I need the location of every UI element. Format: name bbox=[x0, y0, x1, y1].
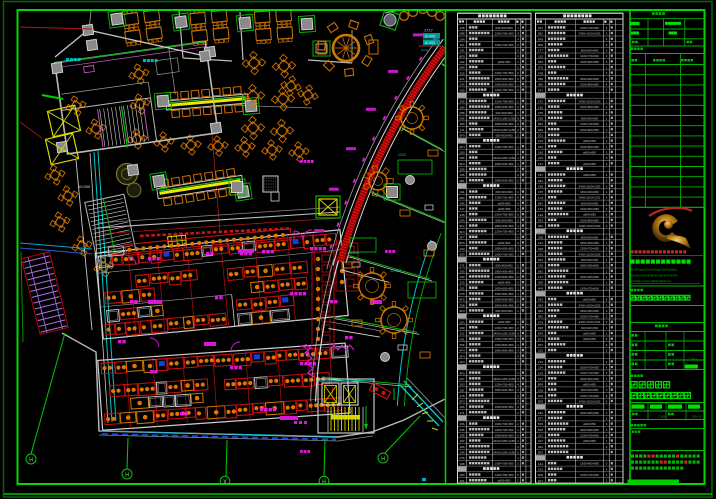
svg-text:10.000: 10.000 bbox=[425, 41, 435, 45]
svg-text:5F9: 5F9 bbox=[538, 400, 544, 404]
svg-text:1200×750×800: 1200×750×800 bbox=[495, 145, 514, 149]
svg-text:φ600×850: φ600×850 bbox=[498, 207, 511, 211]
svg-text:1500×800×850: 1500×800×850 bbox=[580, 145, 599, 149]
svg-text:1200×750×800: 1200×750×800 bbox=[495, 230, 514, 234]
svg-text:10.000: 10.000 bbox=[390, 269, 401, 273]
svg-text:133: 133 bbox=[538, 207, 543, 211]
svg-text:281: 281 bbox=[460, 388, 465, 392]
svg-text:1200×750×800: 1200×750×800 bbox=[495, 32, 514, 36]
svg-text:106: 106 bbox=[460, 445, 465, 449]
svg-text:173: 173 bbox=[538, 196, 543, 200]
svg-text:φ600×850: φ600×850 bbox=[583, 162, 596, 166]
svg-text:289: 289 bbox=[460, 168, 465, 172]
svg-text:1500×800×850: 1500×800×850 bbox=[495, 83, 514, 87]
svg-text:2400×1150×1250: 2400×1150×1250 bbox=[493, 128, 515, 132]
svg-text:2400×1150×1250: 2400×1150×1250 bbox=[493, 332, 515, 336]
svg-text:2400×1150×1250: 2400×1150×1250 bbox=[579, 100, 601, 104]
svg-text:H: H bbox=[125, 473, 129, 479]
svg-text:1800×900×800: 1800×900×800 bbox=[495, 349, 514, 353]
svg-text:182: 182 bbox=[538, 411, 543, 415]
svg-text:1717: 1717 bbox=[424, 28, 434, 33]
svg-text:1800×900×800: 1800×900×800 bbox=[580, 241, 599, 245]
svg-text:1800×900×800: 1800×900×800 bbox=[580, 309, 599, 313]
svg-text:2400×1150×1250: 2400×1150×1250 bbox=[493, 377, 515, 381]
svg-text:258: 258 bbox=[538, 235, 543, 239]
svg-text:268: 268 bbox=[460, 303, 465, 307]
svg-text:135: 135 bbox=[538, 105, 543, 109]
svg-text:600×600×800: 600×600×800 bbox=[495, 309, 513, 313]
svg-text:1800×900×800: 1800×900×800 bbox=[495, 286, 514, 290]
svg-text:2400×1150×1250: 2400×1150×1250 bbox=[579, 196, 601, 200]
svg-text:277: 277 bbox=[538, 88, 543, 92]
svg-text:1200×750×800: 1200×750×800 bbox=[495, 71, 514, 75]
svg-text:024: 024 bbox=[538, 258, 543, 262]
svg-text:1200×750×800: 1200×750×800 bbox=[580, 247, 599, 251]
svg-text:600×600×800: 600×600×800 bbox=[581, 326, 599, 330]
svg-text:041: 041 bbox=[460, 337, 465, 341]
svg-text:251: 251 bbox=[460, 286, 465, 290]
svg-text:1500×800×850: 1500×800×850 bbox=[495, 275, 514, 279]
svg-text:1000×700×950: 1000×700×950 bbox=[495, 326, 514, 330]
svg-text:8F9: 8F9 bbox=[538, 37, 544, 41]
svg-text:1800×900×800: 1800×900×800 bbox=[495, 224, 514, 228]
svg-text:2F3: 2F3 bbox=[460, 309, 466, 313]
svg-text:113: 113 bbox=[538, 434, 543, 438]
svg-text:084: 084 bbox=[460, 196, 465, 200]
svg-text:251: 251 bbox=[460, 479, 465, 483]
svg-text:8F8: 8F8 bbox=[538, 43, 544, 47]
svg-text:053: 053 bbox=[538, 60, 543, 64]
svg-text:600×600×800: 600×600×800 bbox=[581, 388, 599, 392]
svg-text:1500×800×850: 1500×800×850 bbox=[580, 105, 599, 109]
svg-text:8F9: 8F9 bbox=[460, 54, 466, 58]
svg-text:084: 084 bbox=[538, 303, 543, 307]
svg-text:φ600×850: φ600×850 bbox=[498, 60, 511, 64]
svg-text:081: 081 bbox=[460, 179, 465, 183]
svg-text:600×600×800: 600×600×800 bbox=[495, 26, 513, 30]
svg-text:019: 019 bbox=[538, 252, 543, 256]
svg-text:109: 109 bbox=[460, 60, 465, 64]
svg-text:9F2: 9F2 bbox=[460, 224, 466, 228]
svg-text:φ600×850: φ600×850 bbox=[583, 422, 596, 426]
svg-text:236: 236 bbox=[460, 422, 465, 426]
svg-text:190: 190 bbox=[538, 151, 543, 155]
svg-text:108: 108 bbox=[460, 462, 465, 466]
svg-text:084: 084 bbox=[460, 66, 465, 70]
svg-text:1000×700×950: 1000×700×950 bbox=[580, 366, 599, 370]
svg-text:221: 221 bbox=[460, 77, 465, 81]
svg-text:177: 177 bbox=[538, 49, 543, 53]
svg-text:279: 279 bbox=[538, 320, 543, 324]
svg-text:201: 201 bbox=[538, 134, 543, 138]
svg-text:3F7: 3F7 bbox=[538, 343, 544, 347]
svg-text:115: 115 bbox=[538, 54, 543, 58]
svg-text:075: 075 bbox=[538, 190, 543, 194]
svg-text:083: 083 bbox=[460, 473, 465, 477]
svg-text:137: 137 bbox=[538, 275, 543, 279]
svg-text:1800×900×800: 1800×900×800 bbox=[495, 105, 514, 109]
svg-text:135: 135 bbox=[460, 173, 465, 177]
svg-text:081: 081 bbox=[538, 269, 543, 273]
svg-text:2400×1150×1250: 2400×1150×1250 bbox=[493, 117, 515, 121]
svg-text:φ600×850: φ600×850 bbox=[498, 479, 511, 483]
svg-text:247: 247 bbox=[538, 439, 543, 443]
svg-text:1800×900×800: 1800×900×800 bbox=[495, 122, 514, 126]
svg-text:109: 109 bbox=[538, 139, 543, 143]
svg-text:1500×800×850: 1500×800×850 bbox=[580, 60, 599, 64]
svg-text:9F4: 9F4 bbox=[460, 145, 466, 149]
svg-text:180: 180 bbox=[538, 117, 543, 121]
svg-text:027: 027 bbox=[460, 377, 465, 381]
svg-text:215: 215 bbox=[538, 156, 543, 160]
svg-text:1500×800×850: 1500×800×850 bbox=[495, 292, 514, 296]
svg-text:5F9: 5F9 bbox=[460, 134, 466, 138]
svg-text:1200×750×800: 1200×750×800 bbox=[495, 100, 514, 104]
svg-text:190: 190 bbox=[538, 264, 543, 268]
svg-text:1F9: 1F9 bbox=[538, 371, 544, 375]
svg-text:3F4: 3F4 bbox=[460, 354, 466, 358]
svg-text:112: 112 bbox=[460, 332, 465, 336]
svg-text:2400×1150×1250: 2400×1150×1250 bbox=[579, 184, 601, 188]
svg-text:4F5: 4F5 bbox=[460, 371, 466, 375]
svg-text:134: 134 bbox=[460, 83, 465, 87]
svg-text:076: 076 bbox=[538, 66, 543, 70]
svg-text:286: 286 bbox=[538, 77, 543, 81]
svg-text:φ600×850: φ600×850 bbox=[583, 337, 596, 341]
svg-text:1000×700×950: 1000×700×950 bbox=[495, 462, 514, 466]
svg-text:www.bjbrx.com E-mail:bjbrx@1: www.bjbrx.com E-mail:bjbrx@163.com bbox=[631, 280, 672, 283]
svg-text:±0.000: ±0.000 bbox=[78, 184, 91, 189]
svg-text:4F4: 4F4 bbox=[460, 349, 466, 353]
svg-text:020: 020 bbox=[460, 252, 465, 256]
svg-text:600×600×800: 600×600×800 bbox=[495, 190, 513, 194]
svg-text:083: 083 bbox=[538, 122, 543, 126]
svg-text:10.000: 10.000 bbox=[348, 251, 359, 255]
svg-text:φ600×850: φ600×850 bbox=[583, 173, 596, 177]
svg-text:092: 092 bbox=[538, 315, 543, 319]
svg-text:No.38 xinghuo Road Fengtai Dis: No.38 xinghuo Road Fengtai District Beij… bbox=[631, 269, 678, 272]
svg-text:127: 127 bbox=[538, 162, 543, 166]
svg-text:1500×800×850: 1500×800×850 bbox=[580, 207, 599, 211]
svg-text:122: 122 bbox=[538, 241, 543, 245]
svg-text:149: 149 bbox=[460, 451, 465, 455]
svg-text:233: 233 bbox=[538, 145, 543, 149]
svg-text:087: 087 bbox=[538, 202, 543, 206]
svg-text:φ600×850: φ600×850 bbox=[583, 213, 596, 217]
svg-text:8F5: 8F5 bbox=[460, 241, 466, 245]
svg-text:5F7: 5F7 bbox=[538, 417, 544, 421]
svg-text:1200×750×800: 1200×750×800 bbox=[495, 383, 514, 387]
svg-text:187: 187 bbox=[538, 173, 543, 177]
svg-text:1800×900×800: 1800×900×800 bbox=[580, 377, 599, 381]
svg-text:600×600×800: 600×600×800 bbox=[581, 117, 599, 121]
svg-text:1800×900×800: 1800×900×800 bbox=[580, 264, 599, 268]
svg-text:1200×750×800: 1200×750×800 bbox=[580, 122, 599, 126]
svg-text:099: 099 bbox=[538, 309, 543, 313]
svg-text:251: 251 bbox=[538, 26, 543, 30]
svg-text:199: 199 bbox=[538, 185, 543, 189]
svg-text:199: 199 bbox=[460, 275, 465, 279]
svg-text:600×600×800: 600×600×800 bbox=[581, 235, 599, 239]
svg-text:278: 278 bbox=[460, 394, 465, 398]
svg-text:φ600×850: φ600×850 bbox=[498, 320, 511, 324]
svg-text:abcde: abcde bbox=[421, 48, 429, 52]
svg-text:φ600×850: φ600×850 bbox=[583, 298, 596, 302]
svg-text:1200×750×800: 1200×750×800 bbox=[495, 88, 514, 92]
svg-text:113: 113 bbox=[460, 281, 465, 285]
svg-text:011: 011 bbox=[460, 190, 465, 194]
svg-text:1500×800×850: 1500×800×850 bbox=[495, 343, 514, 347]
svg-text:193: 193 bbox=[460, 269, 465, 273]
svg-text:089: 089 bbox=[460, 156, 465, 160]
svg-text:155: 155 bbox=[460, 71, 465, 75]
svg-text:184: 184 bbox=[460, 105, 465, 109]
svg-text:111: 111 bbox=[460, 128, 465, 132]
svg-text:1800×900×800: 1800×900×800 bbox=[580, 428, 599, 432]
svg-text:164: 164 bbox=[538, 360, 543, 364]
svg-text:8F2: 8F2 bbox=[538, 451, 544, 455]
svg-text:2014: 2014 bbox=[691, 358, 697, 362]
svg-text:10.00: 10.00 bbox=[398, 153, 406, 157]
svg-text:056: 056 bbox=[460, 343, 465, 347]
svg-text:088: 088 bbox=[460, 32, 465, 36]
svg-text:167: 167 bbox=[538, 377, 543, 381]
svg-text:171: 171 bbox=[460, 264, 465, 268]
svg-text:115: 115 bbox=[538, 349, 543, 353]
svg-text:φ600×850: φ600×850 bbox=[583, 383, 596, 387]
svg-text:1F2: 1F2 bbox=[538, 100, 544, 104]
svg-text:5F1: 5F1 bbox=[538, 337, 544, 341]
svg-text:064: 064 bbox=[460, 219, 465, 223]
svg-text:1500×800×850: 1500×800×850 bbox=[495, 405, 514, 409]
svg-text:2400×1150×1250: 2400×1150×1250 bbox=[493, 439, 515, 443]
svg-text:180: 180 bbox=[460, 122, 465, 126]
svg-text:1800×900×800: 1800×900×800 bbox=[495, 162, 514, 166]
svg-text:2F8: 2F8 bbox=[538, 394, 544, 398]
svg-text:114: 114 bbox=[460, 43, 465, 47]
svg-text:600×600×800: 600×600×800 bbox=[495, 111, 513, 115]
svg-text:078: 078 bbox=[460, 456, 465, 460]
svg-text:φ600×850: φ600×850 bbox=[583, 139, 596, 143]
svg-text:078: 078 bbox=[460, 292, 465, 296]
svg-text:147: 147 bbox=[460, 207, 465, 211]
svg-text:600×600×800: 600×600×800 bbox=[581, 201, 599, 205]
svg-text:1800×900×800: 1800×900×800 bbox=[580, 411, 599, 415]
svg-text:081: 081 bbox=[538, 179, 543, 183]
svg-text:248: 248 bbox=[460, 26, 465, 30]
svg-text:1500×800×850: 1500×800×850 bbox=[495, 433, 514, 437]
svg-text:200: 200 bbox=[538, 281, 543, 285]
svg-text:1800×900×800: 1800×900×800 bbox=[495, 247, 514, 251]
svg-text:142: 142 bbox=[538, 462, 543, 466]
svg-text:600×600×800: 600×600×800 bbox=[581, 49, 599, 53]
svg-text:7F8: 7F8 bbox=[538, 71, 544, 75]
svg-text:1200×750×800: 1200×750×800 bbox=[580, 473, 599, 477]
svg-text:025: 025 bbox=[460, 88, 465, 92]
svg-text:245: 245 bbox=[460, 213, 465, 217]
svg-text:φ600×850: φ600×850 bbox=[498, 201, 511, 205]
svg-text:2400×1150×1250: 2400×1150×1250 bbox=[579, 32, 601, 36]
svg-text:600×600×800: 600×600×800 bbox=[581, 258, 599, 262]
svg-text:3F7: 3F7 bbox=[460, 235, 466, 239]
svg-text:9F3: 9F3 bbox=[460, 162, 466, 166]
svg-text:206: 206 bbox=[460, 405, 465, 409]
svg-text:1800×900×800: 1800×900×800 bbox=[495, 179, 514, 183]
svg-text:066: 066 bbox=[460, 117, 465, 121]
svg-text:263: 263 bbox=[460, 383, 465, 387]
svg-text:1000×700×950: 1000×700×950 bbox=[495, 422, 514, 426]
svg-text:2400×1150×1250: 2400×1150×1250 bbox=[579, 303, 601, 307]
svg-text:1000×700×950: 1000×700×950 bbox=[495, 43, 514, 47]
svg-text:1200×750×800: 1200×750×800 bbox=[580, 394, 599, 398]
svg-text:1500×800×850: 1500×800×850 bbox=[580, 462, 599, 466]
svg-text:8F9: 8F9 bbox=[538, 428, 544, 432]
svg-text:1F3: 1F3 bbox=[460, 360, 466, 364]
svg-text:131: 131 bbox=[460, 49, 465, 53]
svg-text:1500×800×850: 1500×800×850 bbox=[580, 218, 599, 222]
svg-text:166: 166 bbox=[460, 100, 465, 104]
svg-text:049: 049 bbox=[538, 128, 543, 132]
svg-text:166: 166 bbox=[460, 202, 465, 206]
svg-text:103: 103 bbox=[460, 247, 465, 251]
svg-text:160: 160 bbox=[460, 151, 465, 155]
svg-text:1200×750×800: 1200×750×800 bbox=[580, 286, 599, 290]
svg-text:6F5: 6F5 bbox=[460, 298, 466, 302]
svg-text:098: 098 bbox=[538, 326, 543, 330]
svg-text:φ600×850: φ600×850 bbox=[498, 241, 511, 245]
svg-text:035: 035 bbox=[460, 428, 465, 432]
svg-text:8F9: 8F9 bbox=[538, 473, 544, 477]
svg-text:1800×900×800: 1800×900×800 bbox=[495, 77, 514, 81]
svg-text:5F5: 5F5 bbox=[538, 422, 544, 426]
svg-text:058: 058 bbox=[460, 111, 465, 115]
svg-text:1800×900×800: 1800×900×800 bbox=[580, 275, 599, 279]
svg-text:2400×1150×1250: 2400×1150×1250 bbox=[493, 156, 515, 160]
svg-text:H: H bbox=[381, 457, 385, 463]
svg-text:1000×700×950: 1000×700×950 bbox=[495, 252, 514, 256]
svg-text:090: 090 bbox=[460, 326, 465, 330]
svg-text:1200×750×800: 1200×750×800 bbox=[580, 54, 599, 58]
svg-text:4F4: 4F4 bbox=[538, 286, 544, 290]
svg-text:2400×1150×1250: 2400×1150×1250 bbox=[579, 252, 601, 256]
svg-text:131: 131 bbox=[538, 468, 543, 472]
svg-text:171: 171 bbox=[460, 411, 465, 415]
svg-text:2014.10: 2014.10 bbox=[692, 415, 702, 419]
svg-text:093: 093 bbox=[538, 219, 543, 223]
svg-text:1:100: 1:100 bbox=[658, 415, 666, 419]
svg-text:H: H bbox=[29, 458, 33, 464]
svg-text:022: 022 bbox=[538, 445, 543, 449]
svg-text:1000×700×950: 1000×700×950 bbox=[580, 315, 599, 319]
svg-text:6F5: 6F5 bbox=[538, 332, 544, 336]
svg-text:2400×1150×1250: 2400×1150×1250 bbox=[579, 224, 601, 228]
svg-text:φ600×850: φ600×850 bbox=[498, 281, 511, 285]
svg-text:1200×750×800: 1200×750×800 bbox=[495, 213, 514, 217]
svg-text:114: 114 bbox=[538, 366, 543, 370]
svg-text:1200×750×800: 1200×750×800 bbox=[495, 473, 514, 477]
svg-text:1800×900×800: 1800×900×800 bbox=[495, 298, 514, 302]
svg-text:600×600×800: 600×600×800 bbox=[495, 134, 513, 138]
svg-text:203: 203 bbox=[460, 320, 465, 324]
svg-text:φ600×850: φ600×850 bbox=[583, 332, 596, 336]
svg-text:108: 108 bbox=[460, 434, 465, 438]
svg-text:2400×1150×1250: 2400×1150×1250 bbox=[579, 400, 601, 404]
svg-text:028: 028 bbox=[538, 247, 543, 251]
svg-text:1800×900×800: 1800×900×800 bbox=[495, 388, 514, 392]
svg-text:φ600×850: φ600×850 bbox=[583, 439, 596, 443]
svg-text:5F3: 5F3 bbox=[460, 400, 466, 404]
svg-text:600×600×800: 600×600×800 bbox=[495, 218, 513, 222]
svg-text:1800×900×800: 1800×900×800 bbox=[580, 77, 599, 81]
svg-text:194: 194 bbox=[460, 37, 465, 41]
svg-text:2F7: 2F7 bbox=[538, 479, 544, 483]
svg-text:2400×1150×1250: 2400×1150×1250 bbox=[579, 320, 601, 324]
svg-text:8F8: 8F8 bbox=[538, 383, 544, 387]
svg-text:1500×800×850: 1500×800×850 bbox=[580, 83, 599, 87]
svg-text:10.000: 10.000 bbox=[425, 35, 435, 39]
svg-text:600×600×800: 600×600×800 bbox=[495, 264, 513, 268]
svg-text:4F3: 4F3 bbox=[460, 230, 466, 234]
svg-text:1200×750×800: 1200×750×800 bbox=[495, 196, 514, 200]
svg-text:Tel:+86-10-63726788 Fax:+86-1: Tel:+86-10-63726788 Fax:+86-10-63726799 bbox=[631, 275, 679, 278]
svg-text:φ600×850: φ600×850 bbox=[583, 150, 596, 154]
svg-text:108: 108 bbox=[538, 388, 543, 392]
svg-text:2400×1150×1250: 2400×1150×1250 bbox=[493, 450, 515, 454]
svg-text:1200×750×800: 1200×750×800 bbox=[580, 433, 599, 437]
svg-text:126: 126 bbox=[538, 213, 543, 217]
svg-text:182: 182 bbox=[460, 439, 465, 443]
svg-text:1500×800×850: 1500×800×850 bbox=[580, 128, 599, 132]
svg-text:096: 096 bbox=[538, 83, 543, 87]
svg-text:1000×700×950: 1000×700×950 bbox=[580, 26, 599, 30]
svg-text:081: 081 bbox=[538, 32, 543, 36]
svg-text:1000×700×950: 1000×700×950 bbox=[495, 337, 514, 341]
svg-text:1800×900×800: 1800×900×800 bbox=[495, 303, 514, 307]
svg-text:032: 032 bbox=[538, 298, 543, 302]
svg-text:1200×750×800: 1200×750×800 bbox=[580, 371, 599, 375]
svg-text:1000×700×950: 1000×700×950 bbox=[495, 428, 514, 432]
svg-text:1800×900×800: 1800×900×800 bbox=[580, 190, 599, 194]
svg-text:1800×900×800: 1800×900×800 bbox=[495, 269, 514, 273]
svg-text:252: 252 bbox=[538, 224, 543, 228]
svg-text:276: 276 bbox=[538, 111, 543, 115]
